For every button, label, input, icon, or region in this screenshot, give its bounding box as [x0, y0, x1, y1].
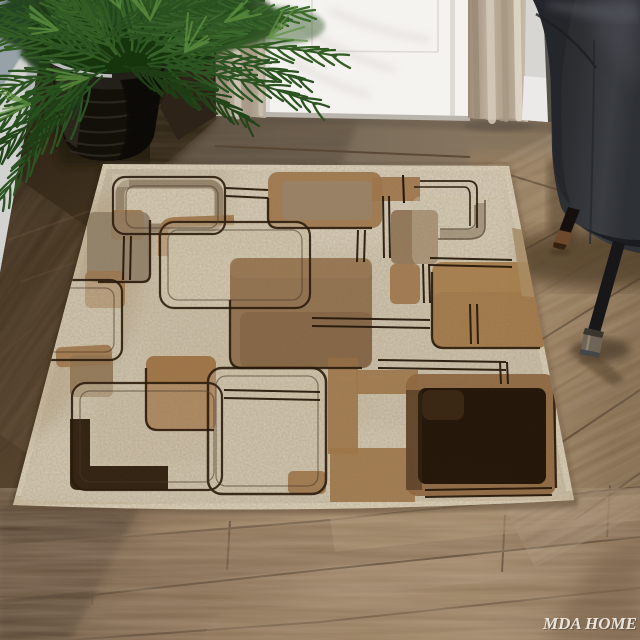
- svg-text:MDA HOME: MDA HOME: [542, 614, 637, 633]
